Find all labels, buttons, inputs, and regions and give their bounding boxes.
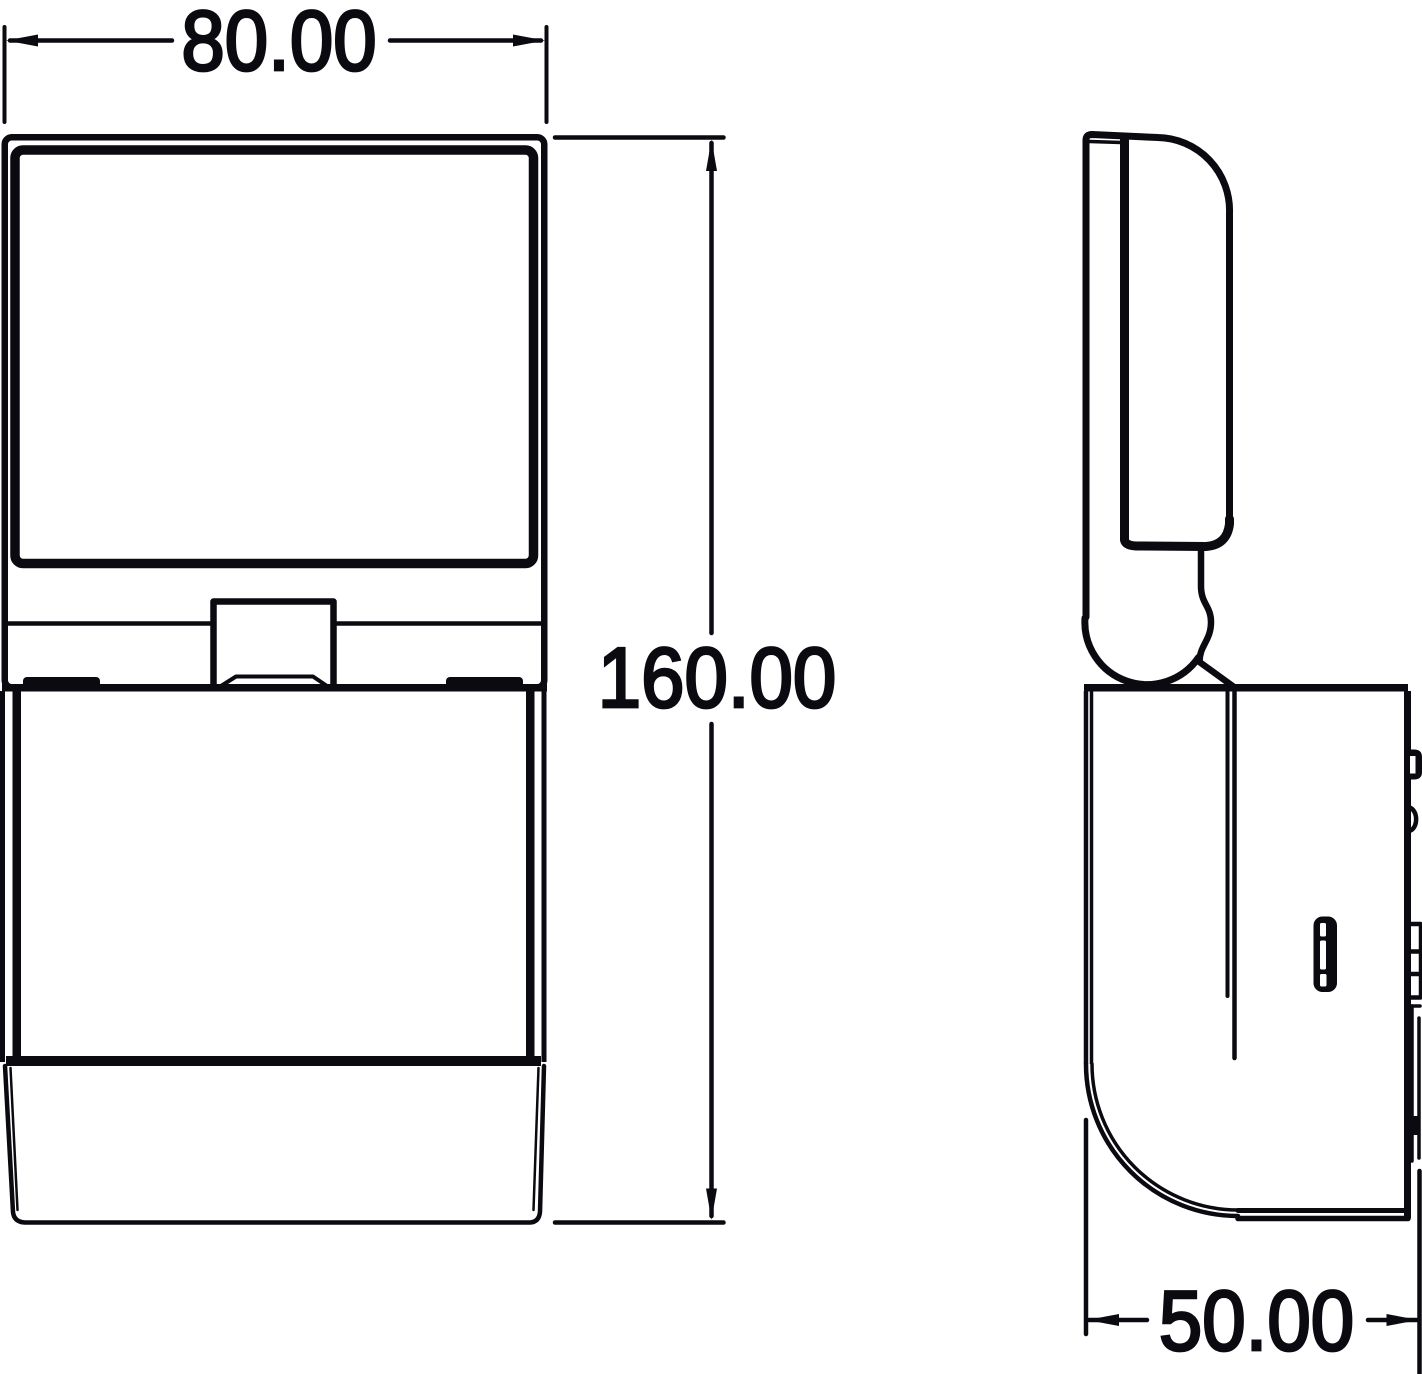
svg-text:80.00: 80.00 <box>181 0 376 89</box>
svg-text:50.00: 50.00 <box>1159 1274 1354 1369</box>
svg-text:160.00: 160.00 <box>598 631 837 726</box>
